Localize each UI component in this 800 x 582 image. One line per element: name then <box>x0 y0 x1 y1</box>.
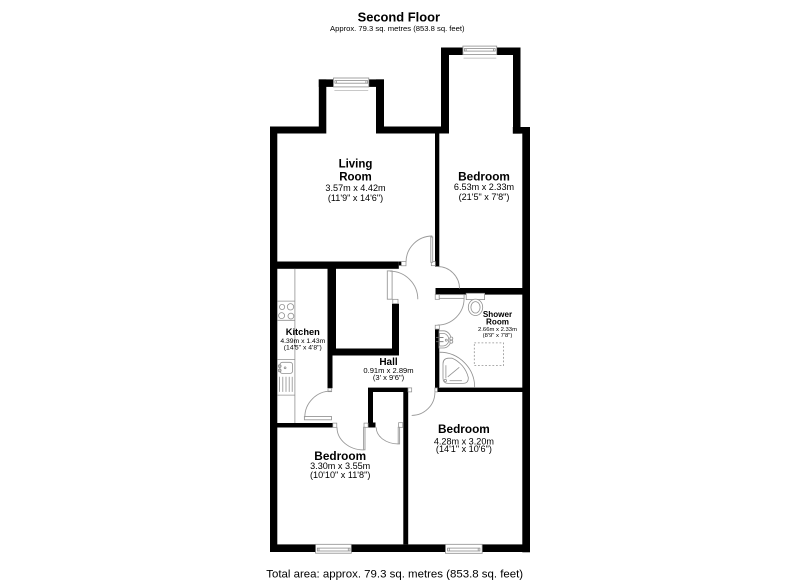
svg-text:(21'5" x 7'8"): (21'5" x 7'8") <box>459 192 510 202</box>
svg-text:Room: Room <box>486 317 509 326</box>
svg-text:(3' x 9'6"): (3' x 9'6") <box>373 373 405 382</box>
svg-text:(14'5" x 4'8"): (14'5" x 4'8") <box>284 345 322 352</box>
svg-text:(10'10" x 11'8"): (10'10" x 11'8") <box>310 470 370 480</box>
svg-text:(14'1" x 10'6"): (14'1" x 10'6") <box>436 444 492 454</box>
svg-text:Second Floor: Second Floor <box>358 10 440 25</box>
svg-text:Total area: approx. 79.3 sq. m: Total area: approx. 79.3 sq. metres (853… <box>266 568 523 580</box>
svg-text:Room: Room <box>339 171 372 183</box>
svg-text:Living: Living <box>339 158 373 170</box>
svg-text:(11'9" x 14'6"): (11'9" x 14'6") <box>328 193 383 203</box>
svg-text:Kitchen: Kitchen <box>286 327 320 337</box>
svg-text:6.53m x 2.33m: 6.53m x 2.33m <box>454 182 514 192</box>
svg-text:Bedroom: Bedroom <box>438 422 490 436</box>
svg-text:(8'9" x 7'8"): (8'9" x 7'8") <box>483 333 513 339</box>
svg-text:Approx. 79.3 sq. metres (853.8: Approx. 79.3 sq. metres (853.8 sq. feet) <box>330 24 465 33</box>
svg-text:3.57m x 4.42m: 3.57m x 4.42m <box>325 183 385 193</box>
